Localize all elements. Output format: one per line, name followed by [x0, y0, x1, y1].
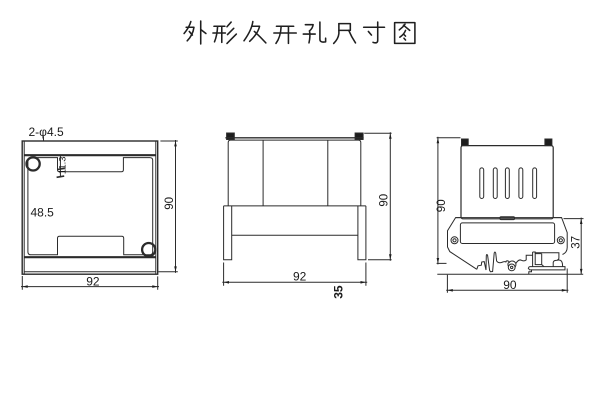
svg-text:90: 90 — [164, 197, 176, 210]
svg-text:90: 90 — [436, 199, 448, 212]
svg-text:35: 35 — [331, 285, 345, 299]
svg-text:37: 37 — [571, 236, 583, 249]
svg-text:2-φ4.5: 2-φ4.5 — [29, 125, 64, 139]
svg-text:92: 92 — [86, 274, 100, 288]
svg-text:92: 92 — [293, 270, 307, 284]
svg-text:48.5: 48.5 — [31, 206, 55, 220]
svg-text:11.3: 11.3 — [57, 156, 68, 174]
svg-text:90: 90 — [503, 278, 517, 292]
svg-text:90: 90 — [379, 194, 391, 207]
